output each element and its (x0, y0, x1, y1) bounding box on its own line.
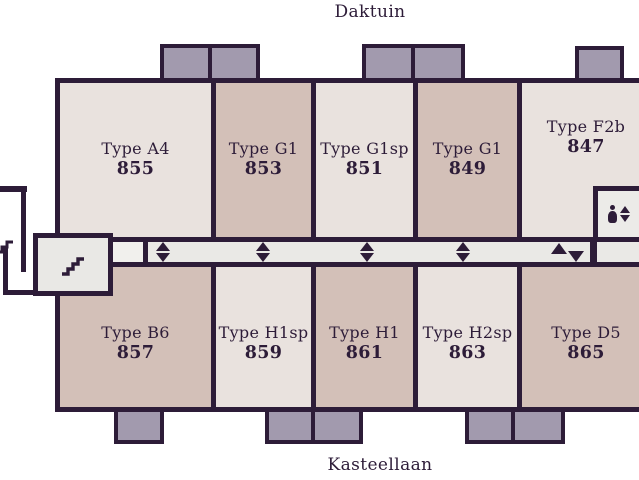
vestibule (110, 242, 143, 262)
unit-type: Type D5 (551, 323, 621, 343)
corridor-wall (143, 237, 148, 267)
up-down-arrows-icon (620, 206, 630, 222)
unit-855[interactable]: Type A4 855 (55, 78, 216, 242)
unit-865[interactable]: Type D5 865 (517, 262, 639, 412)
unit-861[interactable]: Type H1 861 (311, 262, 418, 412)
unit-number: 847 (567, 137, 604, 159)
unit-number: 859 (245, 343, 282, 365)
unit-853[interactable]: Type G1 853 (211, 78, 316, 242)
unit-849[interactable]: Type G1 849 (413, 78, 522, 242)
unit-type: Type G1sp (320, 139, 409, 159)
unit-851[interactable]: Type G1sp 851 (311, 78, 418, 242)
door-marker-icon (155, 242, 170, 262)
up-arrow-icon (551, 243, 567, 254)
door-marker-icon (455, 242, 470, 262)
street-label-daktuin: Daktuin (270, 2, 470, 22)
stairs-icon (60, 254, 86, 276)
unit-number: 857 (117, 343, 154, 365)
entry-platform (3, 248, 38, 295)
person-icon (608, 205, 617, 223)
unit-number: 853 (245, 159, 282, 181)
unit-859[interactable]: Type H1sp 859 (211, 262, 316, 412)
door-marker-icon (255, 242, 270, 262)
unit-number: 855 (117, 159, 154, 181)
unit-type: Type H1sp (219, 323, 309, 343)
unit-number: 861 (346, 343, 383, 365)
unit-type: Type G1 (433, 139, 503, 159)
floorplan: Daktuin Kasteellaan Type A4 855 Type G1 … (0, 0, 639, 480)
stairs-icon-small (0, 240, 14, 255)
unit-863[interactable]: Type H2sp 863 (413, 262, 522, 412)
elevator-room (593, 186, 639, 242)
stairwell-room (33, 233, 113, 296)
unit-number: 865 (567, 343, 604, 365)
street-label-kasteellaan: Kasteellaan (280, 455, 480, 475)
unit-type: Type A4 (101, 139, 169, 159)
unit-type: Type H2sp (423, 323, 513, 343)
unit-type: Type F2b (547, 117, 625, 137)
unit-type: Type B6 (101, 323, 170, 343)
unit-number: 851 (346, 159, 383, 181)
elevator-icon (608, 205, 630, 223)
unit-number: 863 (449, 343, 486, 365)
unit-type: Type G1 (229, 139, 299, 159)
unit-number: 849 (449, 159, 486, 181)
unit-type: Type H1 (329, 323, 400, 343)
down-arrow-icon (568, 251, 584, 262)
door-marker-icon (359, 242, 374, 262)
